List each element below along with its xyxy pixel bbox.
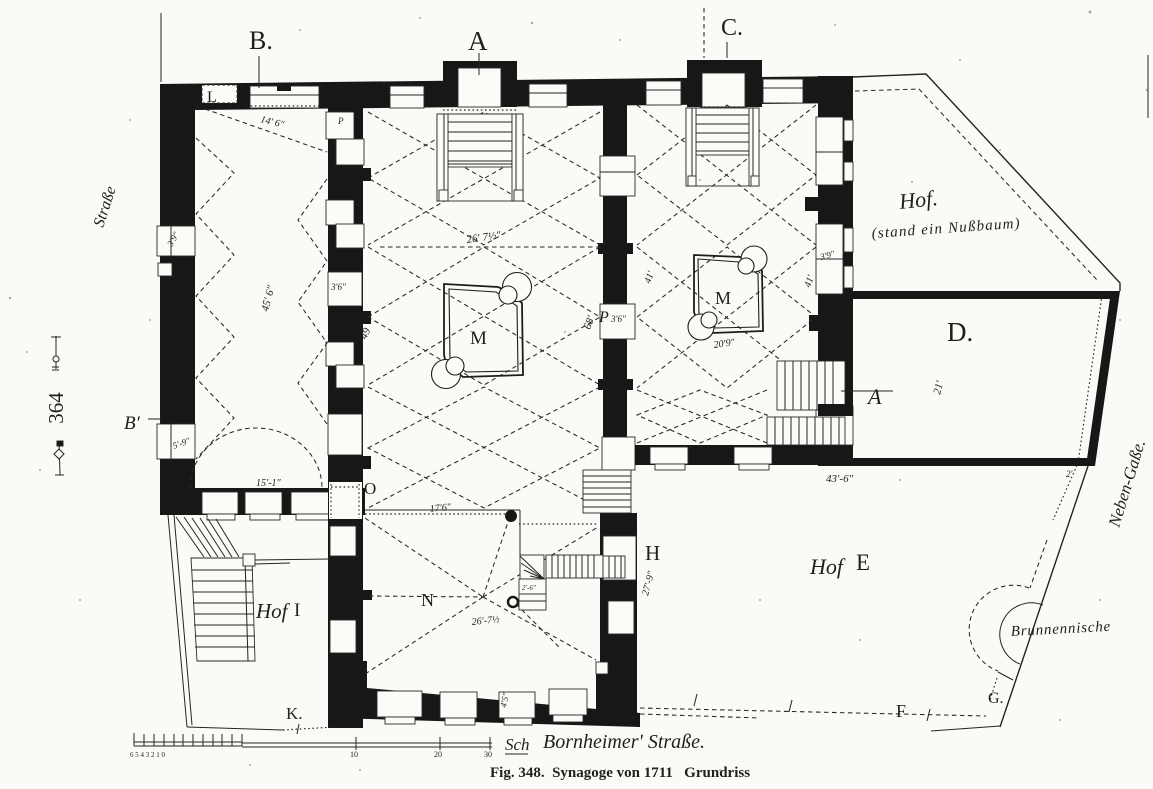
svg-text:D.: D.: [947, 317, 973, 347]
svg-text:A: A: [866, 384, 882, 409]
svg-text:Hof: Hof: [255, 599, 291, 623]
svg-text:Hof: Hof: [809, 554, 846, 579]
svg-text:2′-6″: 2′-6″: [522, 584, 536, 592]
svg-text:30: 30: [484, 750, 492, 759]
svg-text:43′-6″: 43′-6″: [826, 473, 854, 485]
svg-text:P: P: [337, 116, 344, 126]
svg-text:3′6″: 3′6″: [610, 314, 626, 324]
svg-text:P: P: [598, 309, 609, 326]
svg-text:10: 10: [350, 750, 358, 759]
svg-text:Sch: Sch: [505, 735, 530, 754]
svg-text:C.: C.: [721, 15, 743, 41]
svg-text:B′: B′: [124, 413, 141, 434]
svg-text:F: F: [896, 701, 906, 721]
svg-text:M: M: [470, 328, 487, 349]
svg-text:A: A: [468, 26, 488, 56]
svg-text:G.: G.: [988, 690, 1004, 707]
svg-text:O: O: [364, 479, 376, 498]
svg-text:K.: K.: [286, 704, 303, 723]
svg-text:I: I: [294, 600, 300, 621]
svg-text:B.: B.: [249, 26, 273, 55]
svg-text:M: M: [715, 288, 731, 308]
svg-text:L: L: [207, 89, 217, 106]
svg-text:Bornheimerʹ Straße.: Bornheimerʹ Straße.: [543, 731, 705, 753]
svg-text:364: 364: [44, 392, 68, 424]
svg-text:Hof.: Hof.: [897, 185, 939, 214]
svg-text:20: 20: [434, 750, 442, 759]
svg-text:H: H: [645, 541, 660, 565]
svg-text:N: N: [421, 590, 434, 610]
svg-text:3′6″: 3′6″: [330, 282, 346, 292]
svg-text:15′-1″: 15′-1″: [256, 478, 282, 489]
svg-text:E: E: [856, 550, 870, 575]
svg-text:17′6″: 17′6″: [429, 502, 452, 515]
svg-text:6 5 4 3 2 1 0: 6 5 4 3 2 1 0: [130, 751, 166, 759]
svg-text:Fig. 348. Synagoge von 1711: Fig. 348. Synagoge von 1711 Grundriss: [490, 765, 750, 781]
svg-text:2′: 2′: [1066, 469, 1074, 479]
